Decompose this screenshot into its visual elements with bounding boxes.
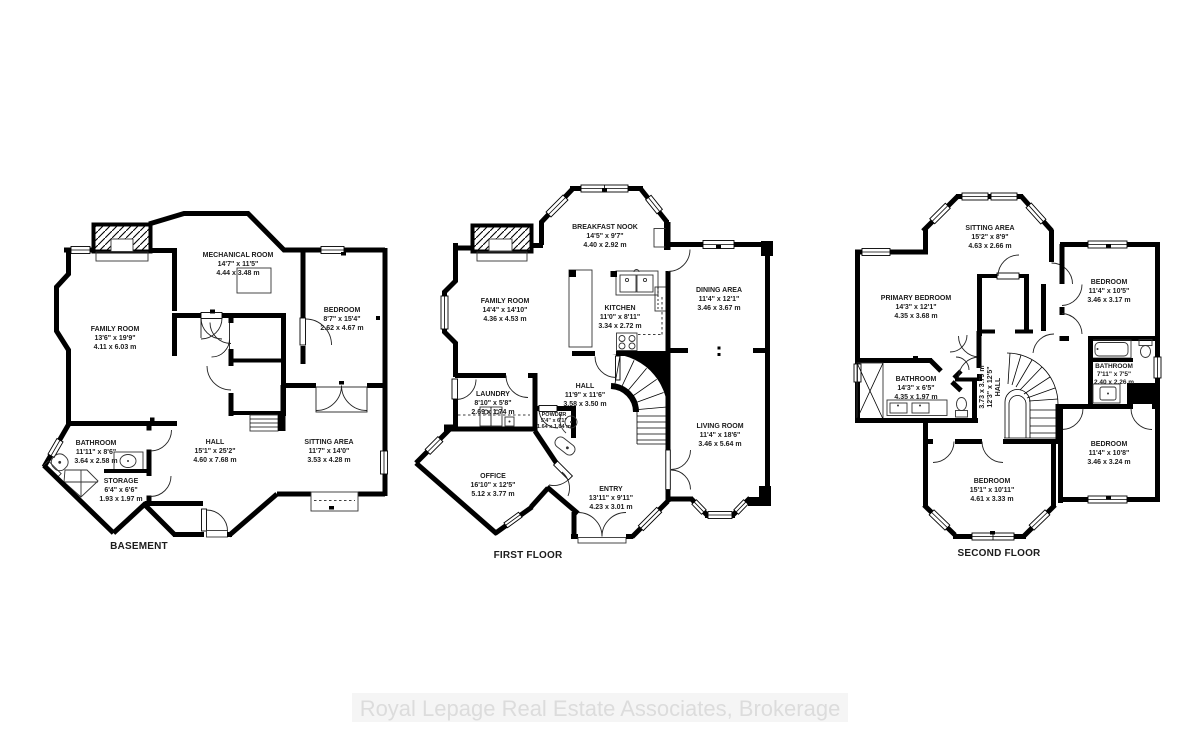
svg-text:3.46 x 3.67 m: 3.46 x 3.67 m bbox=[697, 305, 740, 312]
svg-text:15'1" x 10'11": 15'1" x 10'11" bbox=[970, 487, 1015, 494]
svg-text:SITTING AREA: SITTING AREA bbox=[965, 225, 1014, 232]
svg-text:4.61 x 3.33 m: 4.61 x 3.33 m bbox=[970, 496, 1013, 503]
svg-text:FIRST FLOOR: FIRST FLOOR bbox=[494, 550, 563, 561]
svg-text:BEDROOM: BEDROOM bbox=[1091, 441, 1128, 448]
svg-text:4.63 x 2.66 m: 4.63 x 2.66 m bbox=[968, 243, 1011, 250]
svg-text:Royal Lepage Real Estate Assoc: Royal Lepage Real Estate Associates, Bro… bbox=[360, 696, 841, 721]
svg-text:2.69 x 1.74 m: 2.69 x 1.74 m bbox=[471, 409, 514, 416]
svg-text:8'10" x 5'8": 8'10" x 5'8" bbox=[474, 400, 511, 407]
svg-text:DINING AREA: DINING AREA bbox=[696, 287, 742, 294]
svg-text:11'11" x 8'6": 11'11" x 8'6" bbox=[76, 449, 116, 456]
svg-text:OFFICE: OFFICE bbox=[480, 473, 506, 480]
svg-text:1.93 x 1.97 m: 1.93 x 1.97 m bbox=[99, 496, 142, 503]
svg-text:14'5" x 9'7": 14'5" x 9'7" bbox=[586, 233, 623, 240]
svg-text:2.40 x 2.26 m: 2.40 x 2.26 m bbox=[1094, 379, 1134, 386]
svg-text:STORAGE: STORAGE bbox=[104, 478, 139, 485]
svg-text:14'3" x 6'5": 14'3" x 6'5" bbox=[897, 385, 934, 392]
svg-text:11'4" x 12'1": 11'4" x 12'1" bbox=[699, 296, 740, 303]
svg-text:HALL: HALL bbox=[576, 383, 595, 390]
svg-text:3.46 x 5.64 m: 3.46 x 5.64 m bbox=[698, 441, 741, 448]
svg-text:BATHROOM: BATHROOM bbox=[1095, 363, 1133, 370]
svg-text:MECHANICAL ROOM: MECHANICAL ROOM bbox=[203, 252, 274, 259]
svg-text:4.40 x 2.92 m: 4.40 x 2.92 m bbox=[583, 242, 626, 249]
svg-text:3.64 x 2.58 m: 3.64 x 2.58 m bbox=[74, 458, 117, 465]
svg-text:3.46 x 3.24 m: 3.46 x 3.24 m bbox=[1087, 459, 1130, 466]
svg-text:BATHROOM: BATHROOM bbox=[76, 440, 117, 447]
svg-text:14'7" x 11'5": 14'7" x 11'5" bbox=[218, 261, 259, 268]
svg-text:4.35 x 3.68 m: 4.35 x 3.68 m bbox=[894, 313, 937, 320]
svg-text:11'7" x 14'0": 11'7" x 14'0" bbox=[309, 448, 350, 455]
svg-text:4.11 x 6.03 m: 4.11 x 6.03 m bbox=[94, 344, 137, 351]
svg-text:11'0" x 8'11": 11'0" x 8'11" bbox=[600, 314, 640, 321]
svg-text:SECOND FLOOR: SECOND FLOOR bbox=[958, 548, 1042, 559]
svg-text:11'4" x 18'6": 11'4" x 18'6" bbox=[700, 432, 741, 439]
svg-text:13'6" x 19'9": 13'6" x 19'9" bbox=[94, 335, 135, 342]
svg-text:BEDROOM: BEDROOM bbox=[1091, 279, 1128, 286]
svg-text:BASEMENT: BASEMENT bbox=[110, 541, 168, 552]
svg-text:HALL: HALL bbox=[995, 377, 1002, 396]
svg-text:16'10" x 12'5": 16'10" x 12'5" bbox=[470, 482, 515, 489]
svg-text:11'4" x 10'8": 11'4" x 10'8" bbox=[1089, 450, 1130, 457]
svg-text:3.34 x 2.72 m: 3.34 x 2.72 m bbox=[598, 323, 641, 330]
svg-text:11'9" x 11'6": 11'9" x 11'6" bbox=[565, 392, 605, 399]
svg-text:PRIMARY BEDROOM: PRIMARY BEDROOM bbox=[881, 295, 952, 302]
svg-text:14'3" x 12'1": 14'3" x 12'1" bbox=[895, 304, 936, 311]
svg-text:BEDROOM: BEDROOM bbox=[974, 478, 1011, 485]
svg-text:2.62 x 4.67 m: 2.62 x 4.67 m bbox=[320, 325, 363, 332]
svg-text:LAUNDRY: LAUNDRY bbox=[476, 391, 510, 398]
svg-text:LIVING ROOM: LIVING ROOM bbox=[696, 423, 743, 430]
svg-text:15'2" x 8'9": 15'2" x 8'9" bbox=[971, 234, 1008, 241]
svg-text:6'4" x 6'6": 6'4" x 6'6" bbox=[104, 487, 137, 494]
svg-text:BATHROOM: BATHROOM bbox=[896, 376, 937, 383]
svg-text:FAMILY ROOM: FAMILY ROOM bbox=[481, 298, 530, 305]
svg-text:FAMILY ROOM: FAMILY ROOM bbox=[91, 326, 140, 333]
svg-text:3.46 x 3.17 m: 3.46 x 3.17 m bbox=[1087, 297, 1130, 304]
svg-text:HALL: HALL bbox=[206, 439, 225, 446]
svg-text:3.73 x 3.79 m: 3.73 x 3.79 m bbox=[979, 365, 986, 408]
svg-text:4.23 x 3.01 m: 4.23 x 3.01 m bbox=[589, 504, 632, 511]
svg-text:15'1" x 25'2": 15'1" x 25'2" bbox=[194, 448, 235, 455]
svg-text:7'11" x 7'5": 7'11" x 7'5" bbox=[1097, 371, 1131, 378]
svg-text:SITTING AREA: SITTING AREA bbox=[304, 439, 353, 446]
svg-text:4.60 x 7.68 m: 4.60 x 7.68 m bbox=[193, 457, 236, 464]
svg-text:11'4" x 10'5": 11'4" x 10'5" bbox=[1089, 288, 1130, 295]
svg-text:4.35 x 1.97 m: 4.35 x 1.97 m bbox=[894, 394, 937, 401]
svg-text:BEDROOM: BEDROOM bbox=[324, 307, 361, 314]
svg-text:14'4" x 14'10": 14'4" x 14'10" bbox=[482, 307, 527, 314]
svg-text:12'3" x 12'5": 12'3" x 12'5" bbox=[987, 366, 994, 407]
svg-text:13'11" x 9'11": 13'11" x 9'11" bbox=[589, 495, 633, 502]
svg-text:4.36 x 4.53 m: 4.36 x 4.53 m bbox=[483, 316, 526, 323]
svg-text:8'7" x 15'4": 8'7" x 15'4" bbox=[323, 316, 360, 323]
svg-text:4.44 x 3.48 m: 4.44 x 3.48 m bbox=[216, 270, 259, 277]
svg-text:ENTRY: ENTRY bbox=[599, 486, 623, 493]
svg-text:BREAKFAST NOOK: BREAKFAST NOOK bbox=[572, 224, 638, 231]
svg-text:3.53 x 4.28 m: 3.53 x 4.28 m bbox=[307, 457, 350, 464]
svg-text:5.12 x 3.77 m: 5.12 x 3.77 m bbox=[471, 491, 514, 498]
svg-text:KITCHEN: KITCHEN bbox=[604, 305, 635, 312]
svg-text:1.64 x 1.84 m: 1.64 x 1.84 m bbox=[537, 424, 571, 430]
